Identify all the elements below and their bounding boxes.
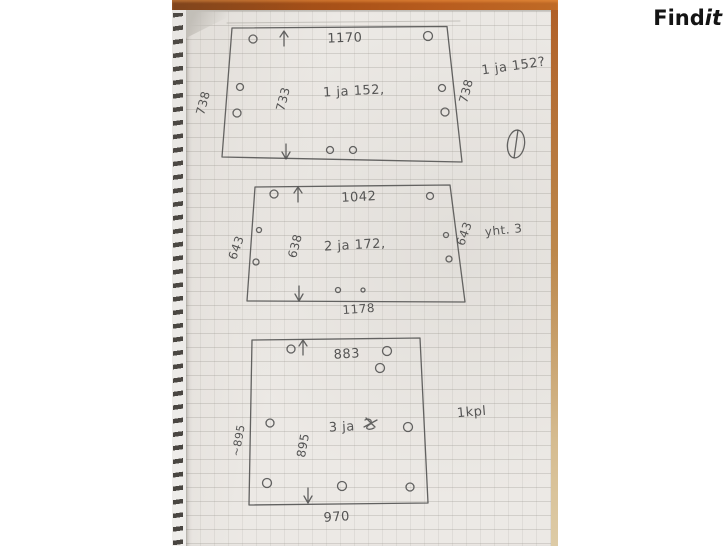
findit-logo-regular: Find bbox=[653, 6, 705, 30]
scribbled-out-number bbox=[364, 418, 377, 429]
margin-note: 1 ja 152? bbox=[481, 55, 547, 79]
page-top-edge bbox=[227, 21, 460, 23]
piece-3-quantity-note: 1kpl bbox=[456, 404, 487, 422]
piece-3-bottom-width: 970 bbox=[323, 509, 350, 526]
piece-3: 883 3 ja 895 ~895 1kpl 970 bbox=[229, 338, 487, 526]
piece-1-left-outer-dim: 738 bbox=[193, 89, 213, 116]
notebook-photo: 1170 1 ja 152, 738 733 738 1 ja 152? bbox=[172, 0, 558, 546]
hand-drawn-sketch: 1170 1 ja 152, 738 733 738 1 ja 152? bbox=[172, 0, 558, 546]
piece-1-top-width: 1170 bbox=[327, 30, 363, 46]
piece-2-right-outer-dim: 643 bbox=[453, 220, 475, 248]
screenshot: 1170 1 ja 152, 738 733 738 1 ja 152? bbox=[0, 0, 728, 546]
findit-logo-italic: it bbox=[705, 6, 722, 30]
down-arrow-mark bbox=[304, 488, 312, 503]
piece-3-left-inner-dim: 895 bbox=[294, 432, 312, 458]
up-arrow-mark bbox=[299, 340, 307, 355]
piece-1-label: 1 ja 152, bbox=[323, 82, 385, 100]
down-arrow-mark bbox=[282, 144, 290, 159]
piece-2-total-note: yht. 3 bbox=[484, 221, 523, 239]
piece-2-left-outer-dim: 643 bbox=[225, 234, 247, 262]
up-arrow-mark bbox=[294, 187, 302, 202]
piece-3-top-width: 883 bbox=[333, 346, 360, 362]
piece-2-left-inner-dim: 638 bbox=[285, 232, 305, 259]
piece-3-holes bbox=[263, 345, 415, 491]
piece-2-bottom-width: 1178 bbox=[342, 301, 375, 317]
piece-3-label: 3 ja bbox=[328, 419, 355, 435]
down-arrow-mark bbox=[295, 286, 303, 301]
piece-2-top-width: 1042 bbox=[341, 189, 377, 206]
piece-1: 1170 1 ja 152, 738 733 738 bbox=[193, 27, 476, 163]
piece-2: 1042 2 ja 172, 638 643 643 yht. 3 1178 bbox=[225, 185, 523, 317]
circled-one-icon bbox=[506, 129, 527, 159]
piece-2-label: 2 ja 172, bbox=[324, 236, 386, 254]
findit-logo: Findit bbox=[653, 6, 722, 30]
up-arrow-mark bbox=[280, 31, 288, 46]
piece-1-left-inner-dim: 733 bbox=[273, 85, 293, 112]
piece-3-left-outer-dim: ~895 bbox=[229, 423, 247, 457]
piece-1-right-outer-dim: 738 bbox=[456, 77, 476, 104]
